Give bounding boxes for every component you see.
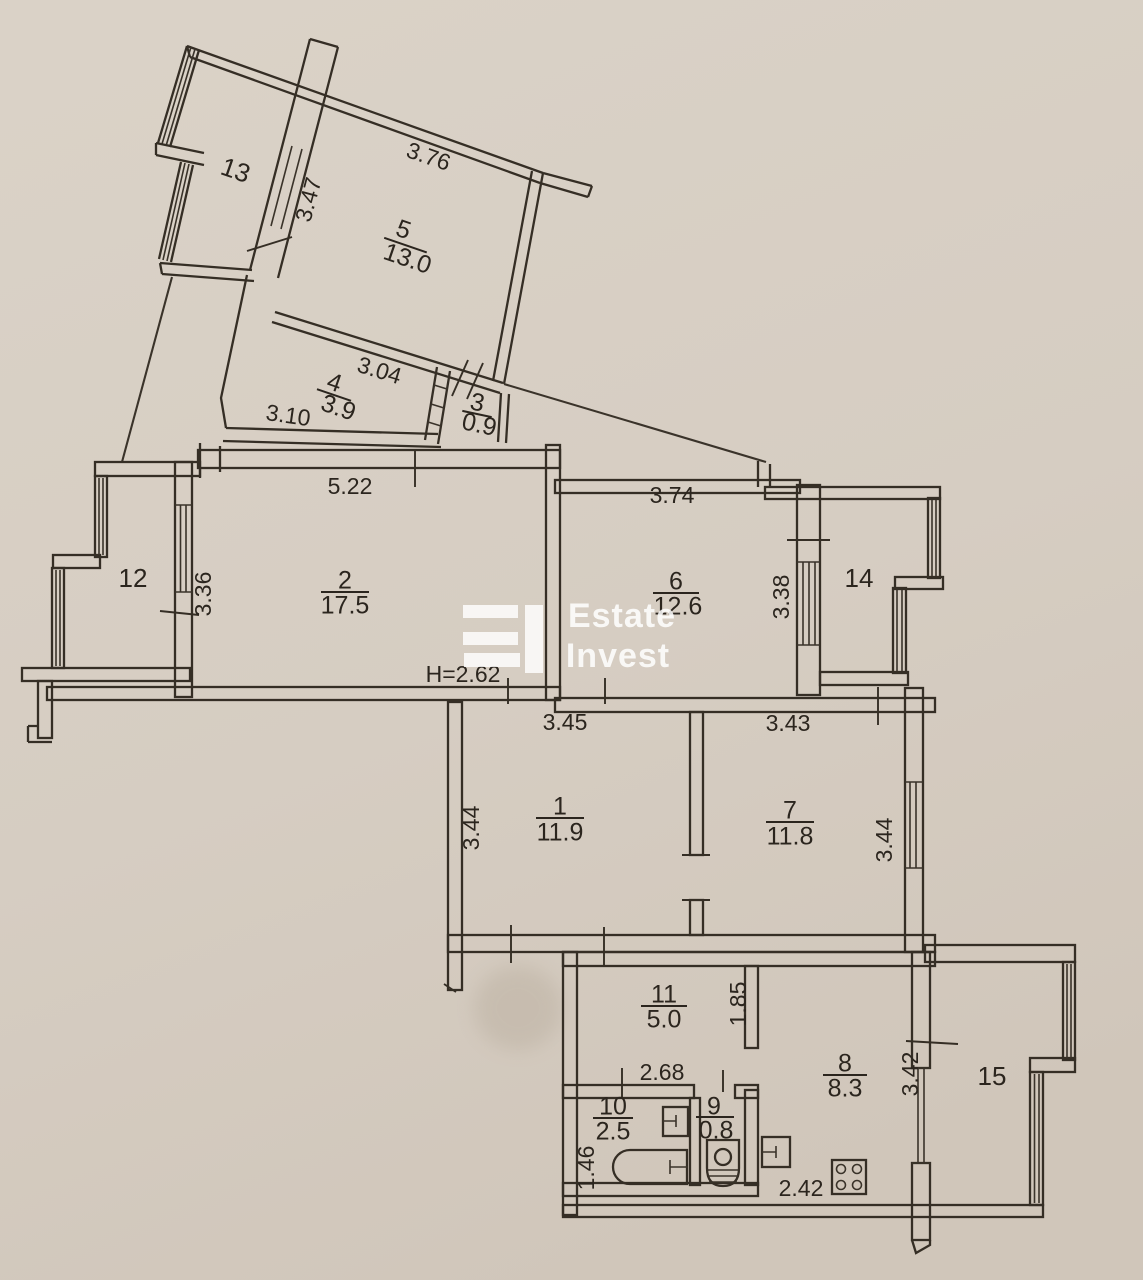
dim-room1-left: 3.44	[458, 805, 484, 850]
dim-room11-right: 1.85	[725, 982, 751, 1027]
balcony-12-number: 12	[119, 563, 148, 593]
room-10-number: 10	[599, 1093, 627, 1121]
dim-room7-top: 3.43	[766, 710, 811, 736]
room-11-area: 5.0	[647, 1006, 682, 1034]
room-7-number: 7	[783, 797, 797, 825]
balcony-15-number: 15	[978, 1061, 1007, 1091]
room-6-number: 6	[669, 568, 683, 596]
dim-room10-left: 1.46	[573, 1146, 599, 1191]
room-9-area: 0.8	[699, 1117, 734, 1145]
room-1-number: 1	[553, 793, 567, 821]
dim-room2-top: 5.22	[328, 473, 373, 499]
room-10-area: 2.5	[596, 1118, 631, 1146]
watermark-line1: Estate	[568, 597, 676, 635]
smudge-mark	[474, 966, 562, 1050]
dim-room6-right: 3.38	[768, 575, 794, 620]
floor-plan-canvas: 13 3.76 3.47 5 13.0 3.04 4 3.9 3.10 3 0.…	[0, 0, 1143, 1280]
dim-room8-bottom: 2.42	[779, 1175, 824, 1201]
room-11-number: 11	[651, 981, 677, 1009]
room-7-area: 11.8	[767, 823, 814, 851]
dim-room7-right: 3.44	[871, 817, 897, 862]
dim-room2-left: 3.36	[190, 572, 216, 617]
floor-plan-page: 13 3.76 3.47 5 13.0 3.04 4 3.9 3.10 3 0.…	[0, 0, 1143, 1280]
estate-invest-logo-icon	[463, 605, 543, 673]
dim-room6-top: 3.74	[650, 482, 695, 508]
watermark-line2: Invest	[566, 637, 670, 675]
room-2-area: 17.5	[321, 592, 370, 620]
dim-room1-top: 3.45	[543, 709, 588, 735]
room-8-number: 8	[838, 1050, 852, 1078]
dim-room8-right: 3.42	[897, 1052, 923, 1097]
dim-room11-bottom: 2.68	[640, 1059, 685, 1085]
balcony-14-number: 14	[845, 563, 874, 593]
room-1-area: 11.9	[537, 819, 584, 847]
room-8-area: 8.3	[828, 1075, 863, 1103]
room-2-number: 2	[338, 567, 352, 595]
